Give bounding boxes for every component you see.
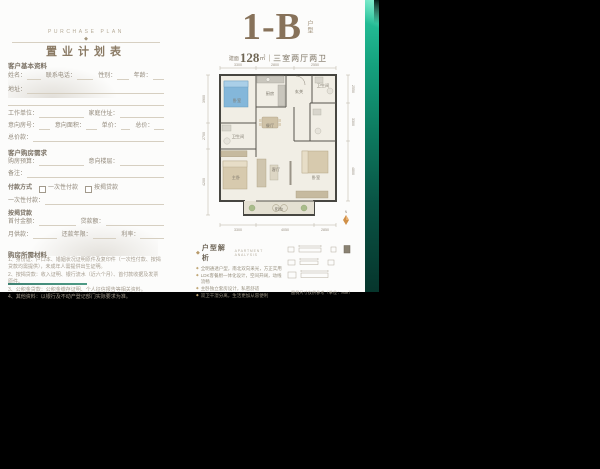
room-label-dining: 餐厅 bbox=[266, 122, 274, 129]
home-blank bbox=[120, 110, 164, 118]
materials-line: 1、身份证、户口本、婚姻状况证明原件及复印件（一次性付款、按揭贷款均需提供），未… bbox=[8, 257, 162, 272]
budget-label: 购房预算： bbox=[8, 158, 38, 166]
brochure-page: PURCHASE PLAN ◆ 置业计划表 客户基本资料 姓名： 联系电话： 性… bbox=[0, 0, 366, 292]
age-label: 年龄： bbox=[134, 72, 152, 80]
analysis-header-row: ◆ 户型解析 APARTMENT ANALYSIS bbox=[196, 243, 284, 263]
dim-right-3: 4800 bbox=[351, 167, 355, 175]
rate-blank bbox=[140, 231, 164, 239]
work-label: 工作单位： bbox=[8, 110, 38, 118]
floor-label: 意向楼层： bbox=[89, 158, 119, 166]
room-label-bedroom-r: 卧室 bbox=[312, 174, 320, 181]
form-row-downpayment: 首付金额： 贷款额： bbox=[8, 218, 164, 226]
form-row-budget: 购房预算： 意向楼层： bbox=[8, 158, 164, 166]
form-row-address-2 bbox=[8, 98, 164, 106]
lump-sum-line-label: 一次性付款： bbox=[8, 197, 44, 205]
form-title: 置业计划表 bbox=[8, 43, 164, 59]
floor-blank bbox=[120, 158, 164, 166]
area-blank bbox=[86, 122, 97, 130]
form-row-identity: 姓名： 联系电话： 性别： 年龄： bbox=[8, 72, 164, 80]
rate-label: 利率： bbox=[121, 231, 139, 239]
dim-right-2: 3300 bbox=[351, 118, 355, 126]
analysis-bullet-text: LDK客餐厨一体化设计，空间开阔，动线流畅 bbox=[201, 273, 284, 284]
brand-caps-text: PURCHASE PLAN bbox=[8, 29, 164, 35]
form-row-address: 地址： bbox=[8, 86, 164, 94]
dim-left-1: 3900 bbox=[202, 95, 206, 103]
form-row-monthly: 月供款： 还款年限： 利率： bbox=[8, 231, 164, 239]
mortgage-subheader: 按揭贷款 bbox=[8, 208, 32, 217]
address-blank bbox=[27, 86, 164, 94]
lump-sum-blank bbox=[45, 197, 164, 205]
dim-top-2: 2800 bbox=[271, 63, 279, 67]
unit-no-label: 意向房号： bbox=[8, 122, 38, 130]
mortgage-option-label: 按揭贷款 bbox=[94, 184, 118, 192]
budget-blank bbox=[39, 158, 83, 166]
dim-bottom-2: 4050 bbox=[281, 228, 289, 232]
name-blank bbox=[27, 72, 41, 80]
analysis-bullet-text: 全明通透户型，南北双向采光，方正实用 bbox=[201, 266, 282, 271]
dim-left-2: 2700 bbox=[202, 132, 206, 140]
analysis-diamond-icon: ◆ bbox=[196, 250, 200, 256]
price-label: 单价： bbox=[102, 122, 120, 130]
loan-blank bbox=[106, 218, 164, 226]
bullet-diamond-icon: ◆ bbox=[196, 286, 199, 291]
dim-top-3: 2550 bbox=[311, 63, 319, 67]
screen-background: PURCHASE PLAN ◆ 置业计划表 客户基本资料 姓名： 联系电话： 性… bbox=[0, 0, 600, 469]
analysis-bullet-row: ◆ LDK客餐厨一体化设计，空间开阔，动线流畅 bbox=[196, 273, 284, 284]
total-label: 总价： bbox=[135, 122, 153, 130]
legend-section: 图例尺寸仅供参考（单位：mm） bbox=[286, 243, 358, 296]
room-label-bath2: 卫生间 bbox=[317, 82, 330, 89]
age-blank bbox=[153, 72, 164, 80]
monthly-blank bbox=[33, 231, 57, 239]
phone-blank bbox=[77, 72, 93, 80]
room-label-bath1: 卫生间 bbox=[232, 133, 245, 140]
unit-title: 1-B bbox=[242, 6, 302, 48]
unit-no-blank bbox=[39, 122, 50, 130]
room-label-foyer: 玄关 bbox=[295, 88, 303, 95]
gender-label: 性别： bbox=[98, 72, 116, 80]
teal-accent-stripe bbox=[365, 0, 379, 292]
form-row-work: 工作单位： 家庭住址： bbox=[8, 110, 164, 118]
mountain-watermark bbox=[28, 222, 158, 256]
analysis-title-en: APARTMENT ANALYSIS bbox=[235, 249, 284, 257]
total-amount-label: 总价款： bbox=[8, 134, 32, 142]
address-blank-2 bbox=[8, 98, 164, 106]
form-row-total-amount: 总价款： bbox=[8, 134, 164, 142]
home-label: 家庭住址： bbox=[89, 110, 119, 118]
analysis-bullet-row: ◆ 双卫干湿分离，生活更加从容便利 bbox=[196, 293, 284, 298]
price-blank bbox=[121, 122, 131, 130]
note-blank bbox=[27, 170, 164, 178]
bullet-diamond-icon: ◆ bbox=[196, 266, 199, 271]
dim-top-1: 3300 bbox=[234, 63, 242, 67]
years-blank bbox=[93, 231, 117, 239]
analysis-bullet-text: 主卧独立套房设计，私密舒适 bbox=[201, 286, 260, 291]
materials-list: 1、身份证、户口本、婚姻状况证明原件及复印件（一次性付款、按揭贷款均需提供），未… bbox=[8, 257, 162, 301]
unit-title-block: 1-B 户型 bbox=[196, 6, 360, 52]
analysis-title: 户型解析 bbox=[202, 243, 232, 263]
mortgage-checkbox-icon bbox=[85, 186, 92, 193]
form-row-lump-sum: 一次性付款： bbox=[8, 197, 164, 205]
years-label: 还款年限： bbox=[62, 231, 92, 239]
bullet-diamond-icon: ◆ bbox=[196, 273, 199, 278]
room-label-kitchen: 厨房 bbox=[266, 90, 274, 97]
room-label-bedroom-tl: 卧室 bbox=[233, 97, 241, 104]
work-blank bbox=[39, 110, 83, 118]
name-label: 姓名： bbox=[8, 72, 26, 80]
room-label-balcony: 阳台 bbox=[275, 206, 283, 213]
phone-label: 联系电话： bbox=[46, 72, 76, 80]
materials-line: 3、公积金贷款：公积金缴存证明、个人征信报告等相关资料。 bbox=[8, 287, 162, 294]
analysis-bullet-row: ◆ 主卧独立套房设计，私密舒适 bbox=[196, 286, 284, 291]
dim-right-1: 2550 bbox=[351, 85, 355, 93]
analysis-bullet-text: 双卫干湿分离，生活更加从容便利 bbox=[201, 293, 269, 298]
analysis-bullet-row: ◆ 全明通透户型，南北双向采光，方正实用 bbox=[196, 266, 284, 271]
analysis-section: ◆ 户型解析 APARTMENT ANALYSIS ◆ 全明通透户型，南北双向采… bbox=[196, 243, 284, 300]
compass-north-label: N bbox=[345, 210, 348, 214]
total-blank bbox=[154, 122, 164, 130]
section-basic-info-header: 客户基本资料 bbox=[8, 60, 47, 70]
address-label: 地址： bbox=[8, 86, 26, 94]
dim-left-3: 4200 bbox=[202, 178, 206, 186]
payment-method-label: 付款方式 bbox=[8, 184, 32, 192]
dim-bottom-3: 2850 bbox=[321, 228, 329, 232]
legend-caption: 图例尺寸仅供参考（单位：mm） bbox=[286, 291, 358, 296]
form-row-intent: 意向房号： 意向面积： 单价： 总价： bbox=[8, 122, 164, 130]
gender-blank bbox=[117, 72, 128, 80]
loan-label: 贷款额： bbox=[81, 218, 105, 226]
materials-line: 4、其他资料：以银行及不动产登记部门实际要求为准。 bbox=[8, 294, 162, 301]
monthly-label: 月供款： bbox=[8, 231, 32, 239]
purchase-plan-form: PURCHASE PLAN ◆ 置业计划表 客户基本资料 姓名： 联系电话： 性… bbox=[8, 0, 164, 292]
downpayment-label: 首付金额： bbox=[8, 218, 38, 226]
form-row-note: 备注： bbox=[8, 170, 164, 178]
section-demand-header: 客户购房需求 bbox=[8, 147, 47, 157]
area-label: 意向面积： bbox=[55, 122, 85, 130]
page-fold-accent bbox=[8, 283, 87, 285]
note-label: 备注： bbox=[8, 170, 26, 178]
total-amount-blank bbox=[33, 134, 164, 142]
unit-tag: 户型 bbox=[305, 20, 314, 34]
lump-sum-option-label: 一次性付款 bbox=[48, 184, 78, 192]
compass-icon: N bbox=[343, 210, 349, 225]
room-label-living: 客厅 bbox=[272, 166, 280, 173]
legend-diagrams bbox=[286, 243, 358, 285]
downpayment-blank bbox=[39, 218, 76, 226]
bullet-diamond-icon: ◆ bbox=[196, 293, 199, 298]
floorplan-drawing: 卧室 卫生间 主卧 厨房 玄关 卫生间 餐厅 客厅 卧室 阳台 3300 280… bbox=[196, 60, 360, 236]
dim-bottom-1: 3300 bbox=[234, 228, 242, 232]
form-row-payment-method: 付款方式 一次性付款 按揭贷款 bbox=[8, 184, 164, 192]
room-label-master: 主卧 bbox=[232, 174, 240, 181]
ornament-diamond-icon: ◆ bbox=[82, 36, 90, 42]
lump-sum-checkbox-icon bbox=[39, 186, 46, 193]
